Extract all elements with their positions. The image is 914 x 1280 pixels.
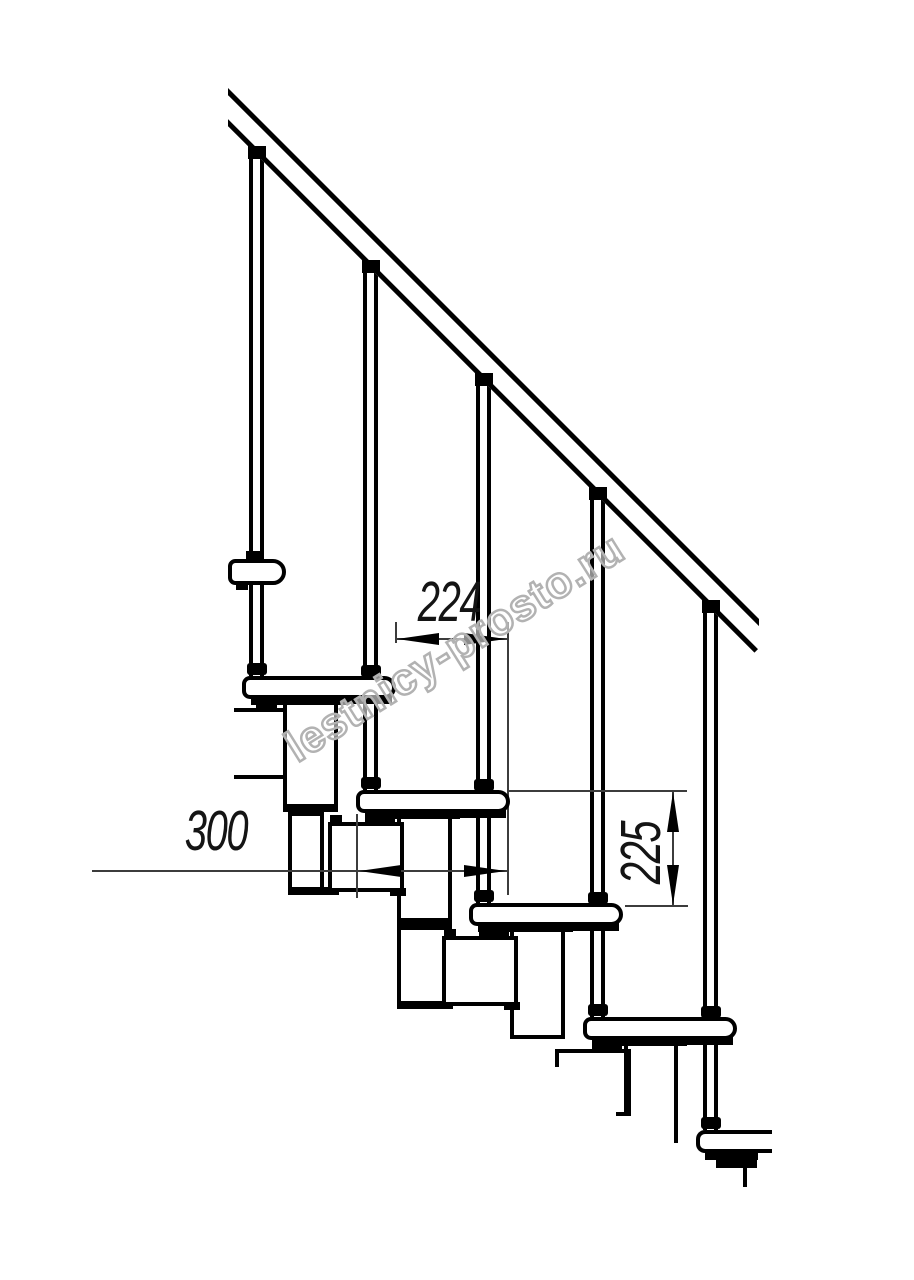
tall-box-4-right-edge	[674, 1042, 678, 1143]
front-box-2	[442, 936, 518, 1006]
tread-strip-front-4	[681, 1037, 733, 1045]
baluster-cap-2	[362, 260, 380, 273]
baluster-cap-1	[248, 146, 266, 159]
front-box-1	[328, 822, 404, 892]
ext-line-front-edge	[507, 622, 509, 895]
tall-box-3	[510, 928, 565, 1039]
ext-line-rise-bottom	[625, 905, 688, 907]
handrail	[228, 80, 759, 656]
tread-notch-3	[483, 928, 504, 937]
front-box-tab-right-2	[504, 1002, 520, 1010]
baluster-base-collar-4	[588, 1004, 608, 1016]
front-box-3-right	[627, 1049, 631, 1116]
dimension-label-rise: 225	[616, 818, 666, 888]
baluster-cap-3	[475, 373, 493, 386]
tread-strip-front-2	[454, 810, 506, 818]
tread-notch-1	[256, 701, 277, 710]
arrow-depth-left	[359, 865, 401, 877]
tall-box-band-1	[283, 804, 338, 812]
front-box-tab-right-1	[390, 888, 406, 896]
arrow-depth-right	[464, 865, 506, 877]
baluster-cap-5	[702, 600, 720, 613]
baluster-5	[703, 609, 718, 1130]
front-box-tab-left-2	[444, 929, 456, 937]
front-box-3-hook	[616, 1112, 631, 1116]
staircase-drawing: 224 300 225 lestnicy-prosto.ru	[0, 0, 914, 1280]
cut-step-edge	[716, 1158, 757, 1168]
front-box-3-left	[555, 1049, 559, 1067]
tall-box-band-2	[397, 918, 452, 926]
cut-line	[743, 1168, 747, 1187]
tread-notch-4	[597, 1042, 618, 1051]
ext-line-rise-top	[509, 790, 687, 792]
lower-box-1	[288, 812, 324, 891]
tread-notch-2	[370, 815, 391, 824]
handrail-band	[228, 82, 759, 653]
baluster-base-collar-2	[361, 777, 381, 789]
baluster-base-collar-1	[247, 663, 267, 675]
baluster-base-collar-5	[701, 1117, 721, 1129]
dim-line-depth	[92, 870, 508, 872]
front-box-tab-left-1	[330, 815, 342, 823]
baluster-base-collar-3	[474, 890, 494, 902]
baluster-cap-4	[589, 487, 607, 500]
ext-line-depth-left	[356, 814, 358, 898]
tread-strip-front-3	[567, 923, 619, 931]
